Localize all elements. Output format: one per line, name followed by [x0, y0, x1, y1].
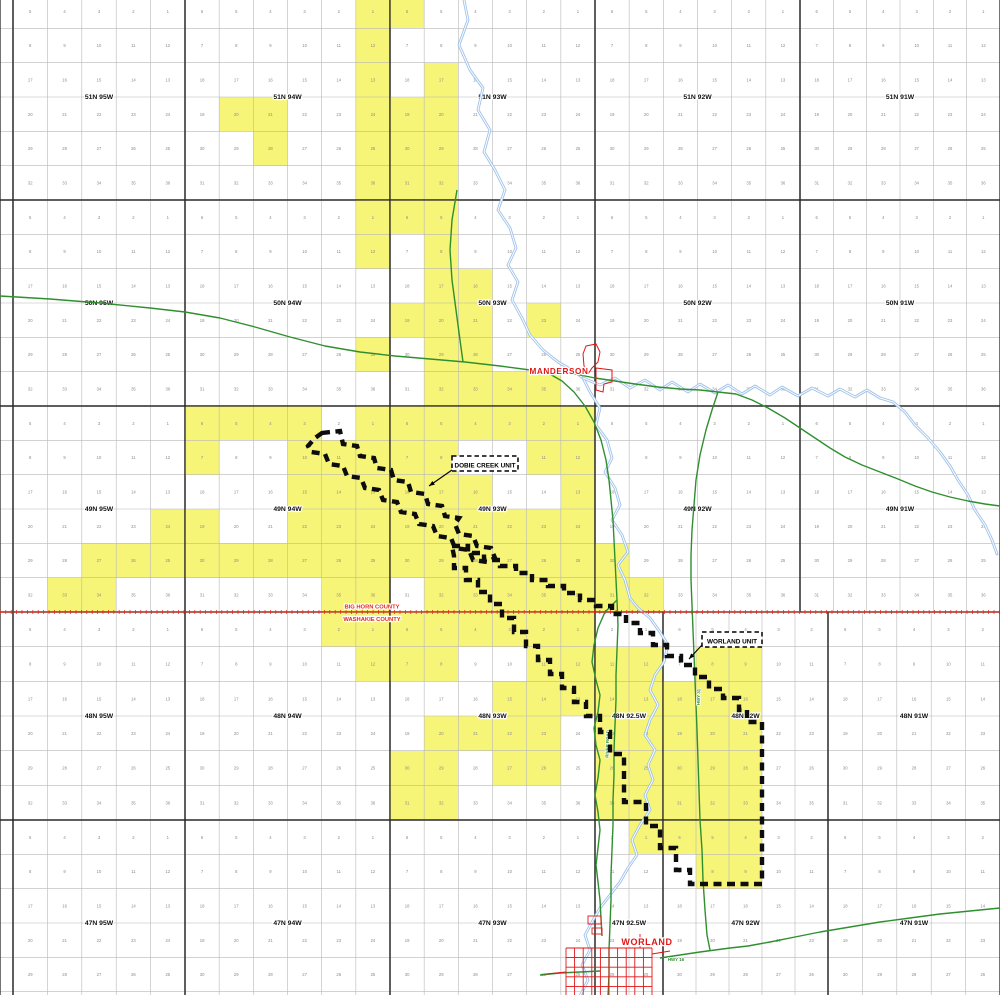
- section-number: 15: [97, 283, 102, 288]
- section-number: 11: [747, 43, 752, 48]
- section-number: 23: [746, 524, 751, 529]
- section-number: 29: [710, 972, 715, 977]
- section-number: 10: [302, 43, 307, 48]
- section-number: 1: [372, 835, 375, 840]
- section-number: 23: [131, 112, 136, 117]
- section-number: 4: [679, 215, 682, 220]
- section-number: 17: [877, 696, 882, 701]
- section-number: 2: [338, 421, 341, 426]
- section-number: 21: [678, 318, 683, 323]
- section-number: 10: [914, 43, 919, 48]
- section-number: 14: [746, 283, 751, 288]
- section-number: 15: [97, 77, 102, 82]
- section-number: 24: [165, 524, 170, 529]
- section-number: 17: [28, 489, 33, 494]
- section-number: 29: [644, 146, 649, 151]
- section-number: 16: [268, 77, 273, 82]
- section-number: 19: [610, 112, 615, 117]
- section-number: 28: [678, 352, 683, 357]
- section-number: 28: [881, 352, 886, 357]
- section-number: 12: [165, 249, 170, 254]
- section-number: 11: [131, 249, 136, 254]
- section-number: 14: [131, 283, 136, 288]
- section-number: 22: [914, 112, 919, 117]
- section-number: 25: [981, 146, 986, 151]
- section-number: 32: [877, 800, 882, 805]
- section-number: 20: [234, 524, 239, 529]
- township-label: 48N 93W: [478, 713, 507, 720]
- section-number: 26: [980, 972, 985, 977]
- section-number: 20: [234, 731, 239, 736]
- section-number: 34: [507, 592, 512, 597]
- section-number: 5: [235, 9, 238, 14]
- section-number: 30: [405, 146, 410, 151]
- section-number: 28: [473, 146, 478, 151]
- section-number: 18: [843, 696, 848, 701]
- section-number: 7: [406, 43, 409, 48]
- section-number: 6: [201, 835, 204, 840]
- section-number: 11: [337, 869, 342, 874]
- section-number: 9: [63, 455, 66, 460]
- section-number: 20: [234, 938, 239, 943]
- section-number: 12: [165, 43, 170, 48]
- section-number: 8: [29, 455, 32, 460]
- section-number: 30: [814, 558, 819, 563]
- section-number: 13: [576, 77, 581, 82]
- section-number: 14: [809, 696, 814, 701]
- section-number: 18: [405, 903, 410, 908]
- section-number: 4: [63, 627, 66, 632]
- section-number: 23: [541, 731, 546, 736]
- section-number: 30: [843, 972, 848, 977]
- section-number: 33: [62, 592, 67, 597]
- section-grid: [0, 440, 13, 577]
- section-number: 34: [914, 592, 919, 597]
- section-number: 5: [29, 835, 32, 840]
- section-grid: [185, 820, 390, 995]
- section-number: 16: [268, 903, 273, 908]
- section-number: 5: [29, 9, 32, 14]
- township-sliver: [0, 612, 13, 820]
- township-label: 51N 91W: [886, 94, 915, 101]
- section-number: 32: [439, 800, 444, 805]
- section-number: 5: [849, 215, 852, 220]
- section-number: 21: [678, 524, 683, 529]
- section-number: 10: [507, 869, 512, 874]
- section-number: 5: [235, 835, 238, 840]
- section-number: 15: [302, 283, 307, 288]
- section-number: 27: [507, 972, 512, 977]
- section-number: 12: [781, 249, 786, 254]
- section-number: 15: [507, 696, 512, 701]
- section-number: 17: [439, 489, 444, 494]
- section-number: 33: [62, 800, 67, 805]
- section-number: 16: [678, 283, 683, 288]
- section-number: 4: [679, 421, 682, 426]
- section-number: 19: [843, 731, 848, 736]
- section-number: 8: [878, 662, 881, 667]
- section-number: 33: [473, 800, 478, 805]
- section-number: 32: [28, 180, 33, 185]
- section-number: 25: [981, 352, 986, 357]
- section-number: 28: [268, 352, 273, 357]
- section-number: 24: [371, 112, 376, 117]
- section-number: 26: [980, 766, 985, 771]
- section-number: 4: [269, 9, 272, 14]
- township-border: [0, 820, 13, 995]
- section-number: 21: [62, 112, 67, 117]
- section-number: 3: [915, 9, 918, 14]
- section-number: 31: [405, 180, 410, 185]
- section-number: 2: [132, 9, 135, 14]
- section-number: 32: [439, 386, 444, 391]
- section-number: 11: [131, 869, 136, 874]
- section-number: 7: [815, 249, 818, 254]
- section-number: 14: [131, 489, 136, 494]
- section-number: 21: [268, 524, 273, 529]
- section-number: 26: [541, 766, 546, 771]
- section-number: 4: [882, 215, 885, 220]
- section-number: 19: [405, 318, 410, 323]
- section-number: 15: [914, 283, 919, 288]
- section-number: 8: [645, 249, 648, 254]
- section-number: 14: [336, 283, 341, 288]
- section-number: 25: [165, 146, 170, 151]
- section-number: 2: [132, 627, 135, 632]
- section-number: 2: [748, 421, 751, 426]
- township-label: 49N 94W: [273, 506, 302, 513]
- section-number: 2: [132, 421, 135, 426]
- section-number: 10: [302, 249, 307, 254]
- section-number: 17: [234, 489, 239, 494]
- section-number: 32: [28, 592, 33, 597]
- section-number: 23: [746, 318, 751, 323]
- township-label: 48N 94W: [273, 713, 302, 720]
- town-label: MANDERSON: [529, 367, 588, 376]
- section-number: 4: [679, 9, 682, 14]
- section-number: 27: [302, 352, 307, 357]
- section-number: 12: [781, 455, 786, 460]
- section-number: 22: [97, 318, 102, 323]
- section-number: 29: [439, 766, 444, 771]
- section-number: 20: [439, 938, 444, 943]
- section-number: 30: [200, 972, 205, 977]
- section-number: 34: [302, 180, 307, 185]
- section-number: 20: [644, 112, 649, 117]
- leased-section: [390, 0, 424, 28]
- section-number: 8: [235, 43, 238, 48]
- section-number: 14: [541, 77, 546, 82]
- section-number: 28: [62, 558, 67, 563]
- section-number: 10: [712, 43, 717, 48]
- section-number: 16: [62, 283, 67, 288]
- section-number: 29: [848, 352, 853, 357]
- section-number: 29: [28, 146, 33, 151]
- section-number: 13: [576, 903, 581, 908]
- section-number: 11: [948, 455, 953, 460]
- section-number: 11: [809, 662, 814, 667]
- township-50N-91W: 6543217891011121817161514131920212223243…: [800, 200, 1000, 406]
- section-number: 16: [62, 77, 67, 82]
- township-sliver: [0, 820, 13, 995]
- section-number: 1: [577, 9, 580, 14]
- section-number: 4: [269, 627, 272, 632]
- section-number: 16: [881, 489, 886, 494]
- section-number: 12: [371, 869, 376, 874]
- section-number: 34: [302, 386, 307, 391]
- township-label: 49N 93W: [478, 506, 507, 513]
- township-label: 48N 91W: [900, 713, 929, 720]
- section-number: 23: [980, 731, 985, 736]
- section-number: 23: [131, 938, 136, 943]
- section-number: 23: [131, 731, 136, 736]
- section-number: 29: [877, 766, 882, 771]
- section-number: 17: [710, 696, 715, 701]
- section-number: 28: [912, 766, 917, 771]
- section-number: 32: [439, 180, 444, 185]
- section-number: 8: [29, 869, 32, 874]
- section-number: 10: [97, 869, 102, 874]
- section-number: 33: [62, 180, 67, 185]
- township-48N-95W: 5432189101112171615141320212223242928272…: [13, 612, 185, 820]
- section-number: 7: [406, 869, 409, 874]
- section-number: 18: [677, 903, 682, 908]
- section-number: 9: [882, 43, 885, 48]
- section-number: 25: [371, 972, 376, 977]
- section-number: 35: [948, 180, 953, 185]
- section-number: 12: [644, 662, 649, 667]
- section-number: 29: [877, 972, 882, 977]
- section-number: 25: [781, 146, 786, 151]
- section-number: 20: [644, 318, 649, 323]
- section-number: 2: [543, 835, 546, 840]
- section-number: 16: [62, 903, 67, 908]
- section-grid: [390, 820, 595, 995]
- section-number: 34: [507, 800, 512, 805]
- section-number: 32: [848, 386, 853, 391]
- section-number: 7: [815, 43, 818, 48]
- section-number: 2: [982, 835, 985, 840]
- section-number: 3: [947, 835, 950, 840]
- road-line: [540, 971, 600, 975]
- township-48N-94W: 6543217891011121817161514131920212223243…: [185, 612, 390, 820]
- section-number: 22: [97, 938, 102, 943]
- township-47N-94W: 6543217891011121817161514131920212223243…: [185, 820, 390, 995]
- road-label: HWY 16: [668, 957, 685, 962]
- section-number: 21: [268, 731, 273, 736]
- section-grid: [0, 647, 13, 786]
- section-number: 8: [29, 249, 32, 254]
- section-number: 21: [473, 112, 478, 117]
- section-number: 2: [748, 9, 751, 14]
- section-number: 31: [610, 592, 615, 597]
- section-number: 9: [474, 869, 477, 874]
- section-number: 15: [97, 903, 102, 908]
- section-number: 19: [814, 112, 819, 117]
- section-number: 19: [200, 731, 205, 736]
- section-number: 26: [336, 146, 341, 151]
- section-number: 18: [200, 77, 205, 82]
- section-number: 27: [507, 352, 512, 357]
- section-number: 35: [131, 592, 136, 597]
- section-number: 27: [712, 146, 717, 151]
- section-number: 17: [28, 283, 33, 288]
- section-number: 4: [63, 9, 66, 14]
- section-number: 32: [28, 386, 33, 391]
- section-number: 2: [338, 9, 341, 14]
- section-number: 2: [338, 835, 341, 840]
- section-number: 34: [946, 800, 951, 805]
- section-number: 24: [371, 524, 376, 529]
- section-number: 29: [439, 558, 444, 563]
- section-number: 9: [913, 662, 916, 667]
- section-number: 9: [63, 662, 66, 667]
- county-label-north: BIG HORN COUNTY: [344, 605, 399, 611]
- section-number: 34: [712, 180, 717, 185]
- section-number: 33: [62, 386, 67, 391]
- section-numbers: 6543217891011121817161514131920212223243…: [200, 835, 376, 995]
- section-number: 12: [576, 249, 581, 254]
- section-number: 23: [336, 318, 341, 323]
- section-number: 18: [200, 696, 205, 701]
- section-number: 25: [576, 558, 581, 563]
- section-number: 4: [913, 835, 916, 840]
- section-number: 19: [200, 938, 205, 943]
- section-number: 20: [439, 112, 444, 117]
- section-number: 10: [712, 455, 717, 460]
- section-number: 18: [200, 489, 205, 494]
- section-number: 12: [576, 869, 581, 874]
- section-number: 33: [678, 592, 683, 597]
- section-number: 29: [439, 972, 444, 977]
- section-number: 15: [507, 283, 512, 288]
- section-number: 24: [165, 938, 170, 943]
- section-number: 31: [610, 386, 615, 391]
- section-number: 9: [882, 249, 885, 254]
- section-number: 30: [405, 972, 410, 977]
- section-number: 20: [848, 112, 853, 117]
- section-number: 17: [234, 283, 239, 288]
- township-label: 49N 92W: [683, 506, 712, 513]
- section-number: 27: [946, 972, 951, 977]
- section-number: 6: [844, 835, 847, 840]
- section-number: 28: [743, 972, 748, 977]
- section-number: 15: [946, 696, 951, 701]
- section-number: 26: [131, 766, 136, 771]
- section-number: 17: [234, 77, 239, 82]
- township-label: 48N 92.5W: [612, 713, 647, 720]
- section-number: 29: [644, 558, 649, 563]
- section-number: 27: [914, 558, 919, 563]
- section-number: 9: [269, 662, 272, 667]
- section-number: 14: [336, 696, 341, 701]
- section-number: 11: [131, 43, 136, 48]
- section-number: 36: [165, 592, 170, 597]
- section-number: 17: [644, 283, 649, 288]
- section-number: 21: [62, 731, 67, 736]
- township-47N-92.5W: 211112141323242625353647N 92.5W: [595, 820, 663, 995]
- plat-map[interactable]: 5432189101112171615141320212223242928272…: [0, 0, 1000, 995]
- section-number: 14: [746, 77, 751, 82]
- section-number: 26: [948, 146, 953, 151]
- section-number: 22: [914, 318, 919, 323]
- section-number: 16: [678, 77, 683, 82]
- section-number: 13: [981, 489, 986, 494]
- section-number: 16: [473, 903, 478, 908]
- section-number: 19: [200, 112, 205, 117]
- section-number: 26: [746, 146, 751, 151]
- section-number: 19: [200, 318, 205, 323]
- township-label: 47N 95W: [85, 920, 114, 927]
- section-number: 21: [268, 318, 273, 323]
- section-number: 4: [913, 627, 916, 632]
- section-number: 31: [610, 180, 615, 185]
- section-number: 18: [610, 283, 615, 288]
- section-number: 34: [776, 800, 781, 805]
- section-number: 4: [474, 835, 477, 840]
- section-number: 22: [914, 524, 919, 529]
- section-number: 11: [542, 455, 547, 460]
- section-number: 31: [814, 180, 819, 185]
- section-grid: [0, 234, 13, 371]
- section-number: 5: [29, 215, 32, 220]
- section-number: 36: [165, 386, 170, 391]
- section-number: 5: [645, 421, 648, 426]
- section-number: 2: [982, 627, 985, 632]
- section-number: 16: [62, 696, 67, 701]
- section-number: 18: [814, 77, 819, 82]
- section-number: 17: [848, 77, 853, 82]
- section-number: 22: [302, 318, 307, 323]
- section-number: 35: [131, 800, 136, 805]
- section-number: 24: [576, 731, 581, 736]
- section-number: 33: [268, 180, 273, 185]
- section-number: 15: [97, 489, 102, 494]
- section-number: 23: [336, 731, 341, 736]
- section-number: 10: [97, 43, 102, 48]
- section-grid: [0, 28, 13, 165]
- section-number: 21: [473, 318, 478, 323]
- section-number: 12: [165, 662, 170, 667]
- section-number: 17: [644, 77, 649, 82]
- plat-map-svg: 5432189101112171615141320212223242928272…: [0, 0, 1000, 995]
- section-number: 13: [781, 489, 786, 494]
- section-number: 7: [815, 455, 818, 460]
- section-number: 36: [576, 800, 581, 805]
- section-number: 22: [97, 112, 102, 117]
- section-number: 5: [235, 215, 238, 220]
- section-number: 13: [371, 696, 376, 701]
- section-number: 4: [269, 835, 272, 840]
- section-number: 3: [508, 9, 511, 14]
- section-number: 21: [912, 938, 917, 943]
- section-number: 9: [63, 249, 66, 254]
- section-number: 23: [948, 524, 953, 529]
- section-number: 29: [439, 352, 444, 357]
- section-number: 28: [62, 972, 67, 977]
- section-number: 21: [473, 938, 478, 943]
- section-number: 11: [948, 43, 953, 48]
- section-number: 17: [439, 283, 444, 288]
- hwy-16: HWY 16: [660, 908, 1000, 962]
- section-number: 16: [743, 903, 748, 908]
- section-number: 13: [165, 696, 170, 701]
- section-number: 33: [881, 386, 886, 391]
- section-number: 25: [576, 146, 581, 151]
- section-number: 27: [97, 352, 102, 357]
- section-number: 20: [28, 112, 33, 117]
- section-number: 25: [165, 972, 170, 977]
